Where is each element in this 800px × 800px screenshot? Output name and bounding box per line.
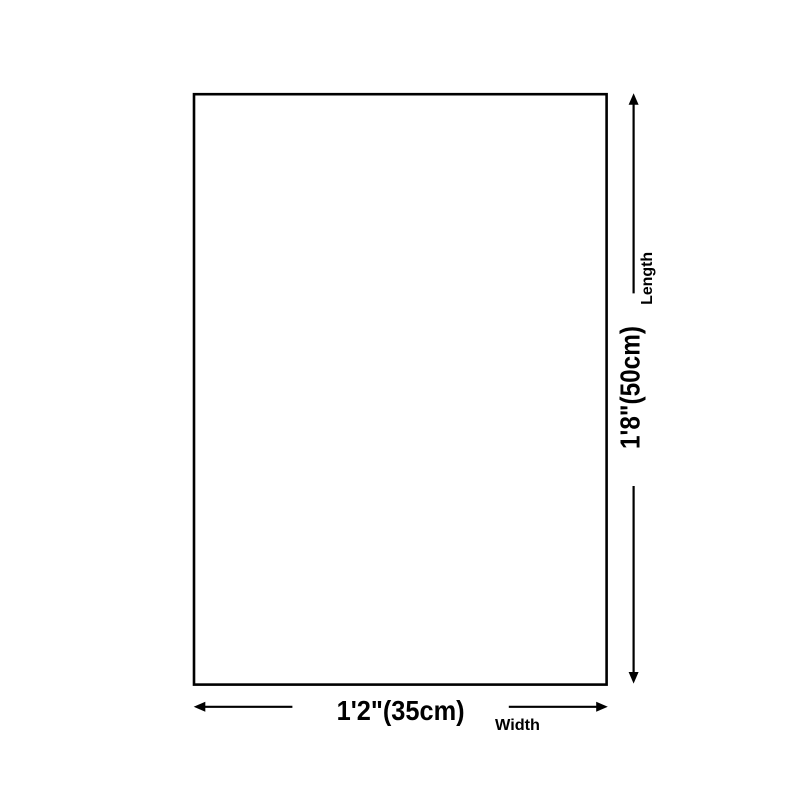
svg-text:Width: Width <box>495 717 540 734</box>
svg-text:1'2"(35cm): 1'2"(35cm) <box>337 695 465 726</box>
svg-text:1'8"(50cm): 1'8"(50cm) <box>615 326 646 449</box>
svg-text:Length: Length <box>639 252 656 305</box>
